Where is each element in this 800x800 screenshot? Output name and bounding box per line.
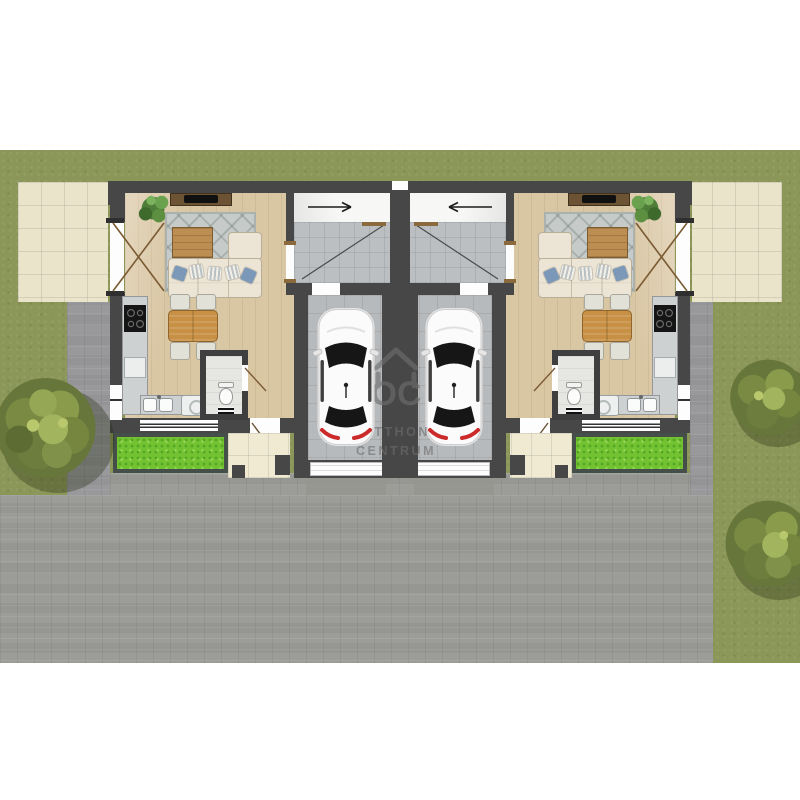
garage-apron [414, 478, 494, 495]
driveway [0, 495, 713, 663]
fridge [124, 357, 146, 378]
coffee-table [587, 227, 628, 258]
sink-bowl [627, 398, 641, 412]
kitchen-sink [142, 396, 178, 414]
sofa-chaise [228, 232, 262, 260]
wall-stub [510, 455, 525, 475]
toilet [567, 388, 581, 405]
entrance-arrow-icon [446, 201, 494, 213]
entry-garage-wall [410, 283, 506, 295]
wall-stub [555, 465, 568, 478]
entrance-arrow-icon [306, 201, 354, 213]
bath-mat [218, 407, 234, 414]
dining-chair [610, 294, 630, 310]
dining-chair [584, 294, 604, 310]
tv [184, 195, 218, 203]
sink-bowl [643, 398, 657, 412]
front-door-swing [410, 222, 506, 283]
garage-overhead-door [416, 462, 490, 476]
front-door [362, 222, 386, 226]
pillow [596, 264, 611, 279]
pillow [578, 266, 592, 280]
french-door [112, 222, 166, 292]
dining-chair [196, 294, 216, 310]
garden-strip [572, 433, 687, 473]
window [678, 385, 690, 420]
kitchen-window [140, 420, 218, 431]
party-wall-upper [400, 181, 410, 295]
sink-bowl [143, 398, 157, 412]
door-leaf [504, 241, 516, 245]
garden-strip [113, 433, 228, 473]
wall-stub [232, 465, 245, 478]
sofa-chaise [538, 232, 572, 260]
garage-overhead-door [310, 462, 384, 476]
wc-door-swing [242, 365, 270, 395]
party-wall-upper [390, 181, 400, 295]
bath-mat [566, 407, 582, 414]
pillow [207, 266, 221, 280]
roof-gap [400, 181, 408, 190]
cooktop [124, 305, 146, 332]
dining-table [582, 310, 632, 342]
front-door-swing [294, 222, 390, 283]
entry-garage-wall [294, 283, 390, 295]
floor-plan-canvas: OC OTTHON CENTRUM [0, 0, 800, 800]
dining-chair [170, 342, 190, 360]
dining-table [168, 310, 218, 342]
fridge [654, 357, 676, 378]
kitchen-window [582, 420, 660, 431]
entry-living-door-opening [286, 244, 294, 280]
cooktop [654, 305, 676, 332]
pillow [189, 264, 204, 279]
tv [582, 195, 616, 203]
french-door [634, 222, 688, 292]
garage-door-opening [460, 283, 488, 295]
toilet [219, 388, 233, 405]
garage-apron [306, 478, 386, 495]
tree [0, 368, 113, 493]
garage-wall-outer [294, 295, 308, 478]
kitchen-sink [622, 396, 658, 414]
patio-terrace [18, 182, 108, 302]
garage-wall-outer [492, 295, 506, 478]
sink-bowl [159, 398, 173, 412]
dining-chair [170, 294, 190, 310]
car [315, 306, 377, 448]
front-door [414, 222, 438, 226]
watermark-monogram: OC [371, 375, 422, 413]
entry-living-door-opening [506, 244, 514, 280]
door-leaf [284, 241, 296, 245]
coffee-table [172, 227, 213, 258]
tree [722, 352, 800, 447]
wall-stub [275, 455, 290, 475]
faucet [639, 395, 643, 399]
garage-door-opening [312, 283, 340, 295]
faucet [157, 395, 161, 399]
tree [718, 492, 800, 600]
wc-door-swing [530, 365, 558, 395]
patio-terrace [692, 182, 782, 302]
dining-chair [610, 342, 630, 360]
roof-gap [392, 181, 400, 190]
